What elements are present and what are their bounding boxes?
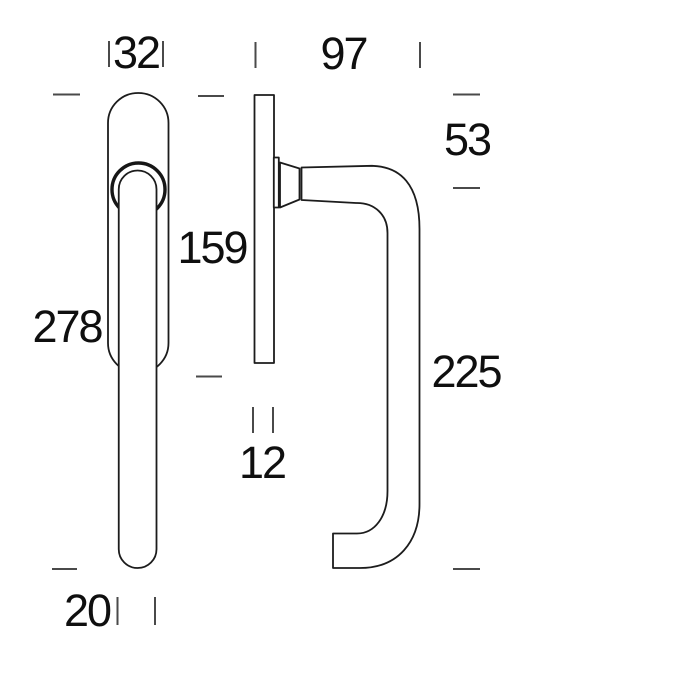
- dim-neck-offset-label: 53: [444, 114, 491, 165]
- grip-front: [119, 171, 157, 569]
- dim-neck-offset: 53: [444, 95, 491, 189]
- handle-profile: [302, 166, 420, 568]
- dim-grip-width: 20: [64, 585, 155, 636]
- dim-grip-length-label: 225: [431, 346, 501, 397]
- dim-total-height-label: 278: [32, 301, 102, 352]
- backplate-side: [255, 95, 275, 363]
- dim-plate-thickness-label: 12: [239, 437, 285, 488]
- dim-projection-depth-label: 97: [320, 28, 366, 79]
- dim-grip-width-label: 20: [64, 585, 111, 636]
- technical-drawing-canvas: 32 97 53 159 278 225: [0, 0, 700, 700]
- front-view: [108, 93, 169, 568]
- dim-handle-width: 32: [109, 27, 163, 78]
- dim-handle-width-label: 32: [113, 27, 159, 78]
- neck-cone: [280, 163, 300, 208]
- window-handle-drawing: 32 97 53 159 278 225: [0, 0, 700, 700]
- dim-projection-depth: 97: [256, 28, 421, 79]
- dim-upper-length: 159: [177, 96, 246, 377]
- dim-grip-length: 225: [431, 346, 501, 569]
- dim-total-height: 278: [32, 95, 102, 570]
- dim-plate-thickness: 12: [239, 407, 285, 488]
- rosette-side: [274, 158, 279, 208]
- side-view: [255, 95, 420, 568]
- dim-upper-length-label: 159: [177, 222, 246, 273]
